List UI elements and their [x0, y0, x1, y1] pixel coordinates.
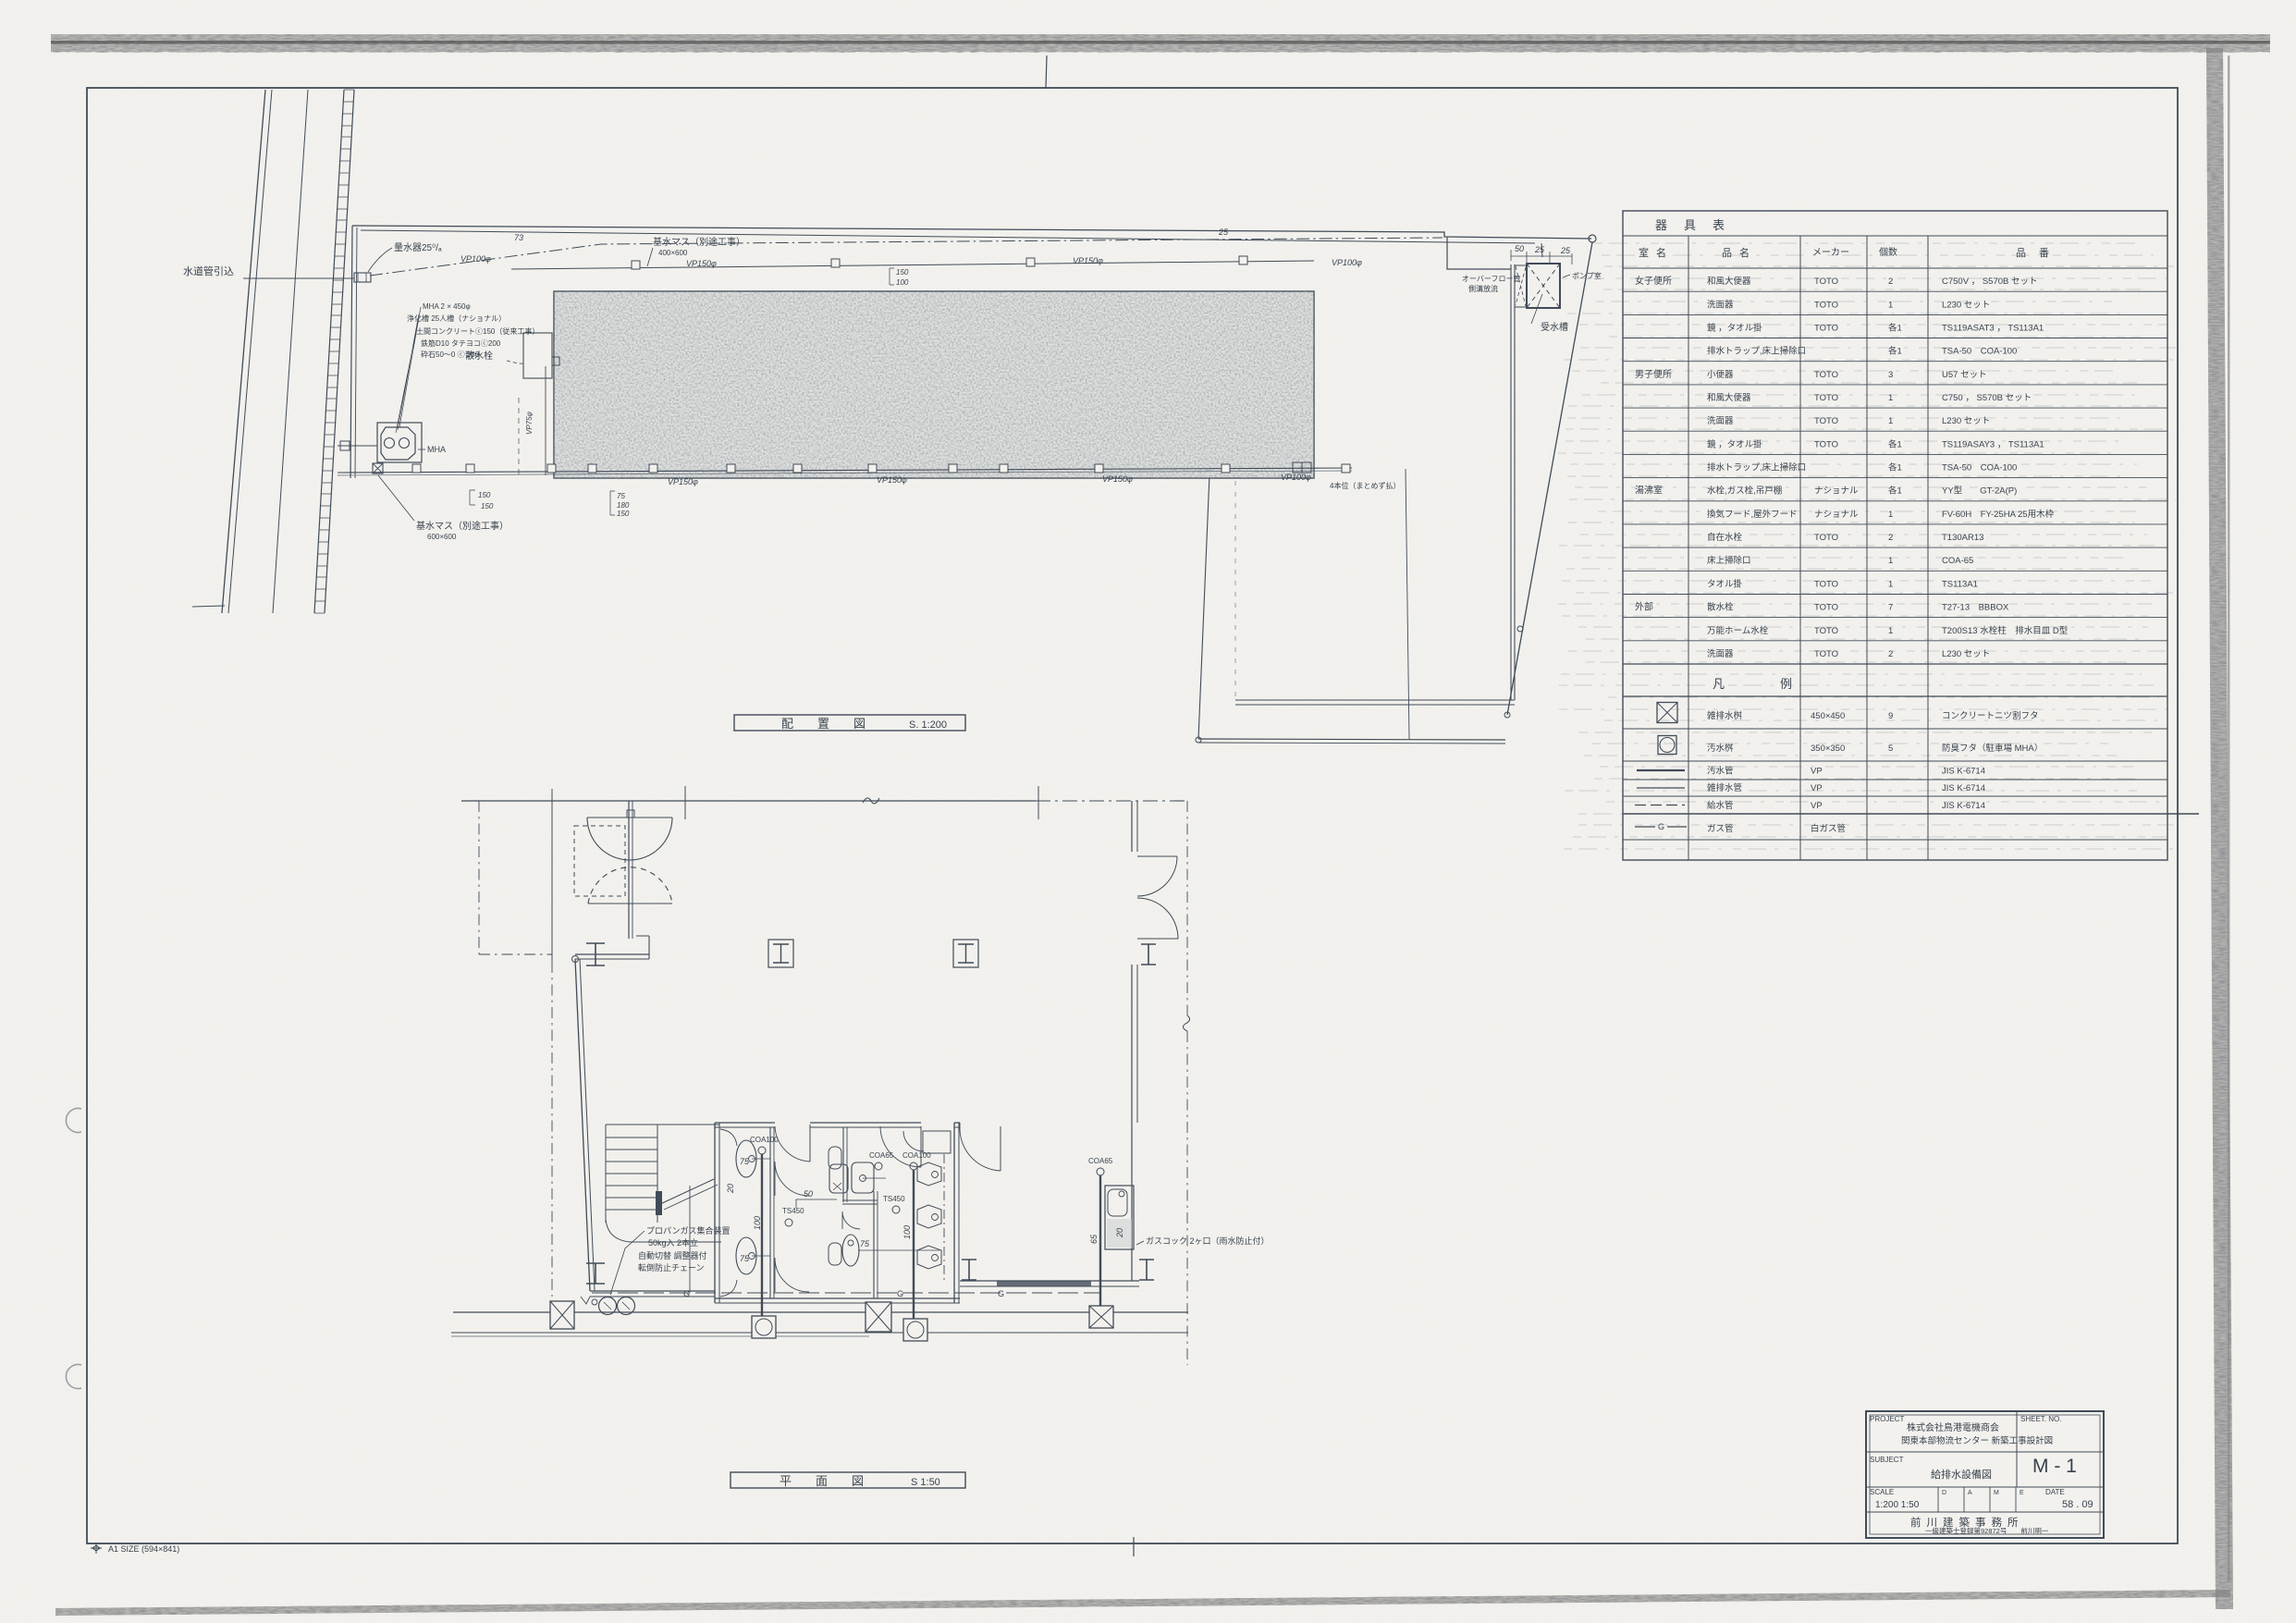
svg-text:M - 1: M - 1: [2032, 1456, 2077, 1477]
svg-text:C750 ， S570B セット: C750 ， S570B セット: [1942, 393, 2032, 403]
svg-text:JIS K-6714: JIS K-6714: [1942, 767, 1985, 777]
svg-text:床上掃除口: 床上掃除口: [1707, 555, 1751, 566]
svg-text:4本位（まとめず払）: 4本位（まとめず払）: [1330, 481, 1400, 490]
svg-text:SHEET. NO.: SHEET. NO.: [2020, 1415, 2061, 1423]
svg-text:鏡 ，タオル掛: 鏡 ，タオル掛: [1707, 323, 1762, 334]
svg-text:汚水桝: 汚水桝: [1707, 743, 1734, 754]
svg-text:SCALE: SCALE: [1870, 1488, 1894, 1496]
svg-text:鉄筋D10 タテヨコⓒ200: 鉄筋D10 タテヨコⓒ200: [421, 338, 501, 348]
svg-text:150: 150: [896, 268, 909, 277]
svg-text:ガスコック 2ヶ口（雨水防止付）: ガスコック 2ヶ口（雨水防止付）: [1146, 1236, 1270, 1246]
svg-text:雑排水桝: 雑排水桝: [1707, 710, 1743, 721]
svg-text:TS450: TS450: [883, 1195, 905, 1203]
svg-text:COA100: COA100: [750, 1136, 779, 1144]
svg-text:E: E: [2020, 1490, 2024, 1496]
svg-text:25: 25: [1534, 245, 1545, 254]
svg-text:排水トラップ,床上掃除口: 排水トラップ,床上掃除口: [1707, 346, 1806, 357]
svg-text:180: 180: [617, 501, 630, 510]
svg-text:器具表: 器具表: [1655, 218, 1741, 232]
svg-text:万能ホーム水栓: 万能ホーム水栓: [1707, 625, 1769, 636]
svg-text:VP150φ: VP150φ: [1073, 256, 1103, 265]
svg-text:400×600: 400×600: [658, 249, 688, 257]
svg-text:タオル掛: タオル掛: [1707, 578, 1743, 589]
svg-text:給排水設備図: 給排水設備図: [1931, 1468, 1992, 1481]
svg-text:洗面器: 洗面器: [1707, 648, 1734, 659]
svg-text:水栓,ガス栓,吊戸棚: 水栓,ガス栓,吊戸棚: [1707, 486, 1782, 497]
svg-text:50kg入 2本立: 50kg入 2本立: [648, 1237, 698, 1248]
svg-text:室名: 室名: [1639, 246, 1674, 259]
svg-text:TOTO: TOTO: [1814, 370, 1838, 380]
svg-text:VP: VP: [1811, 801, 1823, 811]
svg-text:小便器: 小便器: [1707, 369, 1734, 380]
svg-text:プロパンガス集合装置: プロパンガス集合装置: [646, 1225, 730, 1236]
svg-text:ポンプ室: ポンプ室: [1572, 271, 1602, 280]
svg-text:50: 50: [804, 1189, 813, 1199]
svg-text:換気フード,屋外フード: 換気フード,屋外フード: [1707, 509, 1798, 520]
svg-text:VP150φ: VP150φ: [686, 259, 717, 268]
svg-text:基水マス（別途工事）: 基水マス（別途工事）: [416, 520, 509, 532]
svg-text:600×600: 600×600: [427, 533, 457, 541]
svg-text:T200S13 水栓柱 排水目皿 D型: T200S13 水栓柱 排水目皿 D型: [1942, 625, 2069, 636]
svg-text:凡例: 凡例: [1713, 677, 1848, 691]
svg-text:75: 75: [740, 1254, 750, 1263]
svg-text:U57 セット: U57 セット: [1942, 370, 1987, 380]
svg-text:G: G: [683, 1289, 690, 1298]
svg-text:150: 150: [617, 510, 630, 518]
svg-text:各1: 各1: [1888, 346, 1902, 357]
svg-text:TOTO: TOTO: [1814, 649, 1838, 659]
svg-text:1: 1: [1888, 510, 1893, 520]
svg-text:58 . 09: 58 . 09: [2062, 1499, 2093, 1510]
svg-text:VP150φ: VP150φ: [1102, 474, 1133, 484]
svg-text:砕石50〜0 ⓒ 200: 砕石50〜0 ⓒ 200: [421, 350, 480, 359]
svg-text:配置図: 配置図: [781, 717, 890, 731]
svg-text:JIS K-6714: JIS K-6714: [1942, 783, 1985, 793]
svg-text:MHA: MHA: [427, 445, 446, 454]
svg-text:73: 73: [514, 233, 523, 242]
svg-text:A: A: [1968, 1490, 1972, 1496]
svg-text:VP150φ: VP150φ: [877, 475, 907, 485]
svg-text:20: 20: [726, 1184, 735, 1194]
svg-text:1: 1: [1888, 300, 1893, 310]
svg-text:各1: 各1: [1888, 462, 1902, 473]
svg-text:20: 20: [1115, 1228, 1124, 1238]
svg-text:A1 SIZE (594×841): A1 SIZE (594×841): [108, 1544, 179, 1554]
svg-text:男子便所: 男子便所: [1635, 368, 1672, 380]
svg-text:350×350: 350×350: [1811, 744, 1845, 754]
svg-text:側溝放流: 側溝放流: [1468, 284, 1498, 293]
svg-text:品番: 品番: [2016, 247, 2062, 259]
svg-text:VP: VP: [1811, 783, 1823, 793]
svg-text:ナショナル: ナショナル: [1814, 486, 1859, 497]
svg-text:外部: 外部: [1635, 601, 1653, 613]
svg-text:450×450: 450×450: [1811, 711, 1845, 721]
svg-text:転倒防止チェーン: 転倒防止チェーン: [638, 1262, 705, 1273]
svg-text:汚水管: 汚水管: [1707, 766, 1734, 777]
svg-text:D: D: [1942, 1490, 1946, 1496]
svg-text:株式会社鳥港電機商会: 株式会社鳥港電機商会: [1907, 1421, 1999, 1433]
svg-text:洗面器: 洗面器: [1707, 299, 1734, 310]
svg-text:7: 7: [1888, 603, 1893, 613]
svg-text:女子便所: 女子便所: [1635, 275, 1672, 287]
svg-text:雑排水管: 雑排水管: [1707, 782, 1742, 793]
svg-text:関東本部物流センター 新築工事設計図: 関東本部物流センター 新築工事設計図: [1901, 1435, 2053, 1446]
svg-text:VP: VP: [1811, 767, 1823, 777]
svg-text:和風大便器: 和風大便器: [1707, 392, 1751, 403]
svg-text:オーバーフロー管: オーバーフロー管: [1462, 274, 1520, 283]
svg-text:JIS K-6714: JIS K-6714: [1942, 801, 1985, 811]
svg-text:TOTO: TOTO: [1814, 626, 1838, 636]
svg-text:9: 9: [1888, 711, 1893, 721]
svg-text:TS450: TS450: [782, 1207, 804, 1215]
svg-text:湯沸室: 湯沸室: [1635, 485, 1663, 497]
svg-text:COA65: COA65: [869, 1151, 894, 1160]
svg-text:FV-60H FY-25HA 25用木枠: FV-60H FY-25HA 25用木枠: [1942, 509, 2055, 520]
svg-text:基水マス（別途工事）: 基水マス（別途工事）: [653, 236, 745, 248]
svg-text:YY型 GT-2A(P): YY型 GT-2A(P): [1942, 486, 2017, 497]
svg-text:150: 150: [478, 491, 491, 499]
svg-text:各1: 各1: [1888, 438, 1902, 449]
svg-text:ナショナル: ナショナル: [1814, 510, 1859, 520]
svg-text:自在水栓: 自在水栓: [1707, 532, 1743, 543]
svg-text:65: 65: [1089, 1234, 1099, 1244]
svg-text:M: M: [1994, 1490, 1999, 1496]
svg-text:75: 75: [740, 1157, 750, 1166]
svg-text:5: 5: [1888, 744, 1893, 754]
svg-text:散水栓: 散水栓: [1707, 602, 1734, 613]
svg-text:防臭フタ（駐車場 MHA）: 防臭フタ（駐車場 MHA）: [1942, 743, 2043, 754]
svg-text:100: 100: [753, 1216, 762, 1230]
svg-text:100: 100: [896, 278, 909, 287]
svg-text:DATE: DATE: [2045, 1488, 2065, 1496]
svg-text:受水槽: 受水槽: [1541, 321, 1568, 333]
svg-text:SUBJECT: SUBJECT: [1870, 1456, 1904, 1464]
svg-text:150: 150: [481, 502, 494, 510]
svg-text:排水トラップ,床上掃除口: 排水トラップ,床上掃除口: [1707, 462, 1806, 473]
svg-text:各1: 各1: [1888, 486, 1902, 497]
svg-text:100: 100: [902, 1225, 912, 1239]
svg-text:75: 75: [617, 492, 625, 500]
svg-text:L230 セット: L230 セット: [1942, 649, 1990, 659]
svg-text:メーカー: メーカー: [1812, 247, 1849, 258]
svg-text:2: 2: [1888, 277, 1893, 287]
svg-text:平面図: 平面図: [780, 1474, 888, 1488]
svg-text:コンクリートニツ割フタ: コンクリートニツ割フタ: [1942, 710, 2039, 721]
svg-text:浄化槽 25人槽（ナショナル）: 浄化槽 25人槽（ナショナル）: [407, 314, 506, 323]
svg-text:VP100φ: VP100φ: [1332, 258, 1362, 267]
svg-text:品名: 品名: [1722, 246, 1757, 259]
svg-text:2: 2: [1888, 649, 1893, 659]
svg-text:自動切替 調整器付: 自動切替 調整器付: [638, 1250, 707, 1260]
svg-text:COA100: COA100: [902, 1151, 931, 1160]
svg-text:G: G: [897, 1289, 903, 1298]
svg-text:S. 1:200: S. 1:200: [909, 719, 947, 731]
svg-text:25: 25: [1560, 246, 1571, 255]
svg-text:量水器25⁰/ₐ: 量水器25⁰/ₐ: [394, 242, 442, 253]
svg-text:土間コンクリートⓒ150（従来工事）: 土間コンクリートⓒ150（従来工事）: [416, 326, 539, 336]
svg-text:VP75φ: VP75φ: [525, 412, 534, 435]
svg-text:G: G: [998, 1289, 1004, 1298]
svg-text:1:200 1:50: 1:200 1:50: [1875, 1500, 1920, 1510]
svg-text:1: 1: [1888, 626, 1893, 636]
svg-text:PROJECT: PROJECT: [1870, 1415, 1904, 1423]
svg-text:75: 75: [860, 1239, 870, 1248]
svg-text:鏡 ，タオル掛: 鏡 ，タオル掛: [1707, 438, 1762, 449]
svg-text:一級建築士登録第92872号 前川明一: 一級建築士登録第92872号 前川明一: [1925, 1526, 2049, 1535]
svg-text:25: 25: [1218, 227, 1229, 237]
svg-text:S 1:50: S 1:50: [911, 1477, 940, 1488]
svg-text:洗面器: 洗面器: [1707, 415, 1734, 426]
svg-text:各1: 各1: [1888, 323, 1902, 334]
svg-text:MHA 2 × 450φ: MHA 2 × 450φ: [423, 302, 471, 311]
svg-text:G: G: [1658, 822, 1664, 831]
svg-text:VP100φ: VP100φ: [1281, 473, 1311, 482]
svg-text:個数: 個数: [1879, 246, 1897, 258]
svg-text:COA65: COA65: [1088, 1157, 1113, 1165]
svg-text:和風大便器: 和風大便器: [1707, 276, 1751, 287]
svg-text:水道管引込: 水道管引込: [183, 264, 234, 277]
svg-text:3: 3: [1888, 370, 1893, 380]
svg-text:50: 50: [1515, 244, 1524, 253]
svg-text:VP150φ: VP150φ: [668, 477, 698, 486]
